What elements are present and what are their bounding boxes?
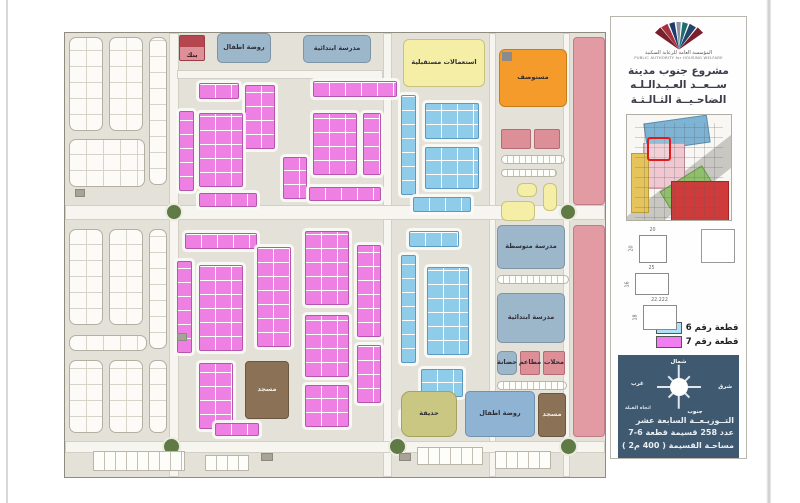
parking-strip [205,455,249,471]
parking-strip [501,169,557,177]
plot-7-cluster [199,363,233,429]
utility-box [399,453,411,461]
residential-block [69,335,147,351]
plot-diagram-22x18: 22.222 18 [643,305,677,330]
plot-7-cluster [313,113,357,175]
compass-east-label: شرق [718,384,732,390]
road [383,33,392,477]
plot-7-cluster [363,113,381,175]
utility-box [177,333,187,341]
road [177,70,383,79]
overview-location-marker [647,137,671,161]
residential-block [149,37,167,185]
plot-7-cluster [305,315,349,377]
shops-block: محلات [543,351,565,375]
project-title: مشروع جنوب مدينة ســعــد العـبـدالـلـه ا… [628,64,729,108]
block-label: روضة اطفال [218,34,270,62]
bank-block: بنك [179,35,205,61]
page-edge [6,0,8,503]
dim-width-label: 22.222 [643,298,677,303]
page-shadow [766,0,771,503]
plot-7-cluster [309,187,381,201]
residential-block [69,360,103,433]
plot-7-cluster [283,157,307,199]
block-label: مسجد [246,362,288,418]
roundabout [165,203,183,221]
plot-7-cluster [357,345,381,403]
distribution-title: التــوزيـعــة السابعة عشر [623,415,734,427]
block-label: مدرسة متوسطة [498,226,564,268]
distribution-info-box: شمال جنوب شرق غرب اتجاه القبلة التــوزيـ… [618,355,739,458]
plot-diagram-25x16: 25 16 [635,273,669,295]
block-label: استعمالات مستقبلية [404,40,484,86]
plot-dimension-diagrams: 20 20 25 16 22.222 18 [621,227,737,318]
nursery-block: حضانة [497,351,517,375]
park-block: حديقة [401,391,457,437]
plot-7-cluster [185,233,257,249]
dim-height-label: 18 [633,314,638,320]
plot-7-cluster [215,423,259,436]
clinic-block: مستوصف [499,49,567,107]
plot-7-cluster [305,385,349,427]
plot-7-cluster [179,111,194,191]
org-name-english: PUBLIC AUTHORITY for HOUSING WELFARE [634,56,722,61]
restaurants-block: مطاعم [520,351,540,375]
plot-7-cluster [199,113,243,187]
legend: قطعة رقم 6 قطعة رقم 7 [619,320,739,350]
sidebar-panel: المؤسسة العامة للرعاية السكنية PUBLIC AU… [610,16,747,459]
elementary-school-block: مدرسة ابتدائية [497,293,565,343]
dim-height-label: 20 [629,245,634,251]
compass-north-label: شمال [671,359,687,365]
pahw-logo [650,22,708,51]
residential-block [149,360,167,433]
plot-7-cluster [357,245,381,337]
roundabout [559,203,577,221]
legend-item-plot6: قطعة رقم 6 [619,322,739,334]
adjacent-zone-block [573,37,605,205]
block-label: مطاعم [521,352,539,374]
residential-block [69,37,103,131]
residential-block [69,139,145,187]
project-title-line: الضاحـيــة الثـالـثـة [628,93,729,108]
plot-7-cluster [305,231,349,305]
service-block [517,183,537,197]
parking-strip [497,275,569,284]
plot-7-cluster [199,265,243,351]
plot-area-line: مساحـة القسيمة ( 400 م2 ) [623,440,734,452]
residential-block [109,229,143,325]
block-label: روضة اطفال [466,392,534,436]
roundabout [559,437,578,456]
compass-west-label: غرب [631,381,644,387]
project-title-line: مشروع جنوب مدينة [628,64,729,79]
future-use-block: استعمالات مستقبلية [403,39,485,87]
residential-block [109,360,143,433]
legend-label: قطعة رقم 7 [686,337,739,347]
middle-school-block: مدرسة متوسطة [497,225,565,269]
plot-6-cluster [413,197,471,212]
dim-height-label: 16 [625,281,630,287]
project-title-line: ســعــد العـبـدالـلـه [628,78,729,93]
plot-6-cluster [425,103,479,139]
dim-width-label: 25 [635,266,669,271]
residential-block [109,37,143,131]
adjacent-zone-block [573,225,605,437]
block-label: مدرسة ابتدائية [304,36,370,62]
road [169,33,179,477]
block-label: محلات [544,352,564,374]
plot-6-cluster [409,231,459,247]
site-plan: بنكروضة اطفالمدرسة ابتدائيةاستعمالات مست… [64,32,606,478]
legend-label: قطعة رقم 6 [686,323,739,333]
residential-block [69,229,103,325]
legend-item-plot7: قطعة رقم 7 [619,336,739,348]
mosque-block: مسجد [538,393,566,437]
plot-7-cluster [199,193,257,207]
plot-6-cluster [401,95,416,195]
shops-block [534,129,560,149]
plot-7-cluster [313,81,397,97]
utility-box [261,453,273,461]
dim-width-label: 20 [639,228,667,233]
compass-south-label: جنوب [687,409,702,415]
qr-code [701,229,735,263]
block-label: حديقة [402,392,456,436]
plot-diagram-20x20: 20 20 [639,235,667,263]
shops-block [501,129,531,149]
utility-box [75,189,85,197]
plot-6-cluster [427,267,469,355]
block-label: حضانة [498,352,516,374]
kindergarten-block: روضة اطفال [217,33,271,63]
residential-block [149,229,167,349]
block-label: مدرسة ابتدائية [498,294,564,342]
plot-6-cluster [401,255,416,363]
parking-strip [501,155,565,164]
service-block [543,183,557,211]
elementary-school-block: مدرسة ابتدائية [303,35,371,63]
plot-7-cluster [245,85,275,149]
service-block [501,201,535,221]
block-label: بنك [180,36,204,60]
plot-6-cluster [425,147,479,189]
parking-strip [497,381,567,390]
plot-7-cluster [199,83,239,99]
compass-qibla-label: اتجاه القبلة [625,406,651,411]
plot-count-line: عدد 258 قسيمة قطعة 6-7 [623,427,734,439]
legend-swatch-plot7 [656,336,682,348]
parking-strip [417,447,483,465]
plot-7-cluster [257,247,291,347]
kindergarten-block: روضة اطفال [465,391,535,437]
block-label: مستوصف [500,50,566,106]
parking-strip [93,451,185,471]
compass-rose: شمال جنوب شرق غرب اتجاه القبلة [623,359,734,415]
mosque-block: مسجد [245,361,289,419]
overview-map [626,114,732,221]
block-label: مسجد [539,394,565,436]
compass-center [670,378,688,396]
parking-strip [495,451,551,469]
